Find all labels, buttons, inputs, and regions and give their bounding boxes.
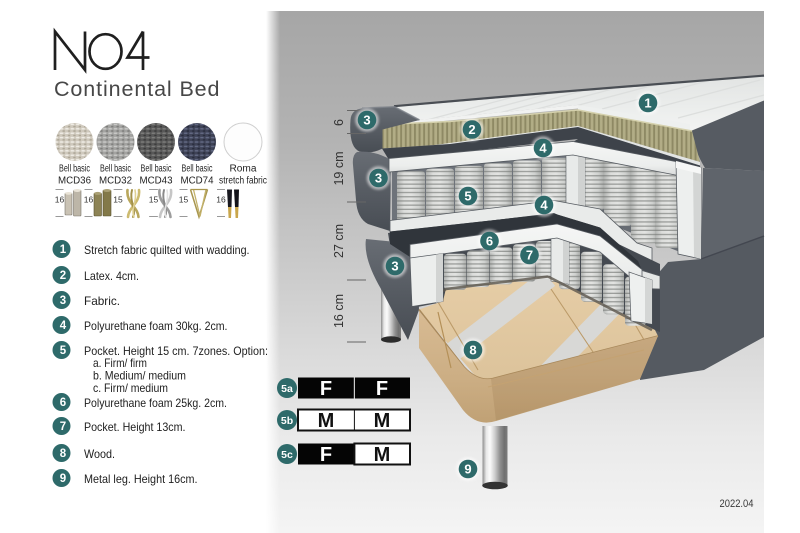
svg-text:Fabric.: Fabric.: [84, 294, 120, 308]
svg-text:3: 3: [363, 113, 370, 128]
svg-text:MCD36: MCD36: [58, 176, 92, 187]
svg-text:15: 15: [149, 195, 159, 205]
svg-text:c. Firm/ medium: c. Firm/ medium: [93, 381, 168, 395]
svg-text:Bell basic: Bell basic: [100, 164, 131, 175]
svg-text:9: 9: [60, 473, 66, 485]
svg-text:6: 6: [486, 234, 493, 249]
svg-text:MCD43: MCD43: [140, 176, 174, 187]
svg-text:MCD74: MCD74: [181, 176, 215, 187]
svg-text:Bell basic: Bell basic: [59, 164, 90, 175]
svg-text:16 cm: 16 cm: [332, 294, 346, 328]
svg-text:19 cm: 19 cm: [332, 151, 346, 185]
svg-text:Wood.: Wood.: [84, 447, 115, 461]
svg-text:3: 3: [60, 295, 66, 307]
svg-text:4: 4: [60, 320, 67, 332]
svg-text:F: F: [376, 378, 388, 400]
svg-text:4: 4: [539, 141, 547, 156]
svg-text:Bell basic: Bell basic: [141, 164, 172, 175]
svg-text:3: 3: [391, 259, 398, 274]
svg-text:15: 15: [113, 195, 123, 205]
svg-text:5b: 5b: [281, 415, 293, 427]
svg-text:stretch fabric: stretch fabric: [219, 176, 267, 187]
svg-text:Latex. 4cm.: Latex. 4cm.: [84, 269, 139, 283]
svg-text:Bell basic: Bell basic: [182, 164, 213, 175]
svg-text:Metal leg. Height 16cm.: Metal leg. Height 16cm.: [84, 472, 198, 486]
svg-text:2022.04: 2022.04: [720, 498, 754, 510]
svg-text:Continental Bed: Continental Bed: [54, 77, 220, 101]
svg-text:Roma: Roma: [230, 164, 258, 175]
svg-text:4: 4: [540, 198, 548, 213]
svg-text:9: 9: [464, 462, 471, 477]
svg-text:M: M: [374, 444, 391, 466]
svg-text:27 cm: 27 cm: [332, 224, 346, 258]
svg-text:8: 8: [60, 448, 67, 460]
svg-text:6: 6: [60, 397, 66, 409]
svg-text:2: 2: [60, 270, 66, 282]
svg-text:7: 7: [60, 421, 66, 433]
svg-text:2: 2: [468, 122, 475, 137]
svg-text:1: 1: [60, 244, 67, 256]
svg-text:16: 16: [216, 195, 226, 205]
svg-text:MCD32: MCD32: [99, 176, 132, 187]
svg-text:6: 6: [332, 119, 346, 126]
svg-text:8: 8: [469, 343, 476, 358]
svg-text:15: 15: [179, 195, 189, 205]
svg-text:F: F: [320, 378, 332, 400]
svg-text:M: M: [318, 410, 335, 432]
svg-text:Polyurethane foam 30kg. 2cm.: Polyurethane foam 30kg. 2cm.: [84, 319, 228, 333]
svg-text:F: F: [320, 444, 332, 466]
svg-text:5c: 5c: [281, 449, 293, 461]
svg-text:16: 16: [84, 195, 94, 205]
svg-text:5: 5: [464, 189, 471, 204]
svg-text:5: 5: [60, 345, 67, 357]
svg-text:3: 3: [375, 171, 382, 186]
svg-text:M: M: [374, 410, 391, 432]
svg-text:5a: 5a: [281, 383, 293, 395]
svg-text:Polyurethane foam 25kg. 2cm.: Polyurethane foam 25kg. 2cm.: [84, 396, 227, 410]
svg-text:Stretch fabric quilted with wa: Stretch fabric quilted with wadding.: [84, 243, 250, 257]
svg-text:Pocket. Height 13cm.: Pocket. Height 13cm.: [84, 420, 186, 434]
svg-text:1: 1: [644, 96, 651, 111]
svg-text:16: 16: [55, 195, 65, 205]
svg-text:7: 7: [526, 248, 533, 263]
